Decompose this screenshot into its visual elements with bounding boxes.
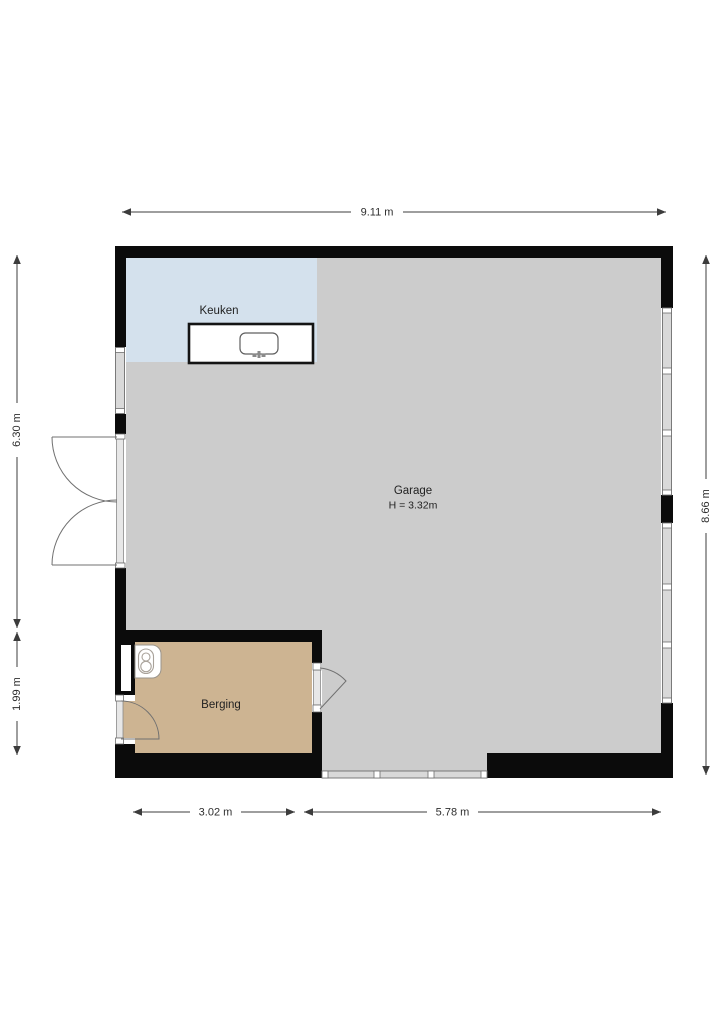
- dim-arrow-right: [652, 808, 661, 816]
- window-glass: [663, 308, 672, 495]
- window-mullion: [663, 430, 672, 436]
- floorplan-canvas: Keuken Garage H = 3.32m Berging 9.11 m 6…: [0, 0, 724, 1024]
- dim-arrow-left: [133, 808, 142, 816]
- door-opening-berging-right: [312, 663, 322, 712]
- faucet-handle: [253, 354, 257, 358]
- window-jamb: [116, 409, 125, 414]
- dim-arrow-up: [13, 632, 21, 641]
- dim-arrow-right: [657, 208, 666, 216]
- wall-right-mid: [661, 495, 673, 523]
- wall-left-mid: [115, 414, 126, 434]
- door-threshold: [314, 670, 321, 705]
- dim-arrow-left: [304, 808, 313, 816]
- dim-label-top: 9.11 m: [361, 207, 394, 219]
- window-jamb: [322, 771, 328, 778]
- window-right-upper: [663, 308, 672, 495]
- wall-niche: [121, 645, 131, 691]
- dimension-bottom-left: 3.02 m: [133, 804, 295, 820]
- window-mullion: [663, 368, 672, 374]
- window-right-lower: [663, 523, 672, 703]
- garage-label: Garage: [394, 485, 432, 497]
- window-jamb: [663, 490, 672, 495]
- dim-label-bottom-right: 5.78 m: [436, 807, 470, 819]
- dimension-left-upper: 6.30 m: [9, 255, 25, 628]
- window-jamb: [663, 698, 672, 703]
- window-mullion: [663, 642, 672, 648]
- dim-arrow-down: [702, 766, 710, 775]
- dim-label-left-upper: 6.30 m: [11, 413, 23, 447]
- dimension-right-height: 8.66 m: [698, 255, 714, 775]
- wall-right-upper: [661, 246, 673, 308]
- wall-left-upper: [115, 246, 126, 347]
- window-mullion: [663, 584, 672, 590]
- dim-arrow-down: [13, 619, 21, 628]
- door-jamb: [313, 663, 321, 670]
- door-threshold: [117, 439, 124, 563]
- dim-arrow-left: [122, 208, 131, 216]
- door-threshold: [117, 701, 124, 738]
- dim-arrow-down: [13, 746, 21, 755]
- sink-icon: [240, 333, 278, 354]
- keuken-label: Keuken: [199, 305, 238, 317]
- window-glass: [663, 523, 672, 703]
- dim-label-left-lower: 1.99 m: [11, 677, 23, 711]
- faucet-spout: [258, 351, 261, 358]
- faucet-handle: [262, 354, 266, 358]
- wall-bottom-right: [487, 753, 673, 778]
- dim-label-right: 8.66 m: [700, 489, 712, 523]
- window-jamb: [481, 771, 487, 778]
- berging-boiler: [135, 645, 161, 678]
- garage-floor-window-recess: [322, 753, 487, 771]
- window-left: [116, 348, 125, 414]
- dimension-top-width: 9.11 m: [122, 204, 666, 220]
- window-jamb: [663, 308, 672, 313]
- kitchen-counter: [189, 324, 313, 363]
- berging-label: Berging: [201, 699, 241, 711]
- window-mullion: [428, 771, 434, 778]
- floorplan-page: Keuken Garage H = 3.32m Berging 9.11 m 6…: [0, 0, 724, 1024]
- double-door-bottom-leaf: [52, 500, 117, 565]
- dim-arrow-right: [286, 808, 295, 816]
- dimension-left-lower: 1.99 m: [9, 632, 25, 755]
- double-door-top-leaf: [52, 437, 117, 502]
- wall-top: [115, 246, 673, 258]
- garage-height-label: H = 3.32m: [389, 500, 438, 512]
- window-jamb: [116, 348, 125, 353]
- berging-floor: [135, 642, 312, 753]
- dim-arrow-up: [13, 255, 21, 264]
- dimension-bottom-right: 5.78 m: [304, 804, 661, 820]
- wall-left-lower: [115, 568, 126, 630]
- window-mullion: [374, 771, 380, 778]
- dim-arrow-up: [702, 255, 710, 264]
- window-bottom: [322, 771, 487, 778]
- door-opening-left-double: [116, 434, 126, 568]
- window-jamb: [663, 523, 672, 528]
- door-jamb: [116, 695, 124, 701]
- dim-label-bottom-left: 3.02 m: [199, 807, 233, 819]
- window-glass: [322, 771, 487, 778]
- door-floor-fill: [123, 701, 135, 738]
- window-glass: [116, 348, 125, 414]
